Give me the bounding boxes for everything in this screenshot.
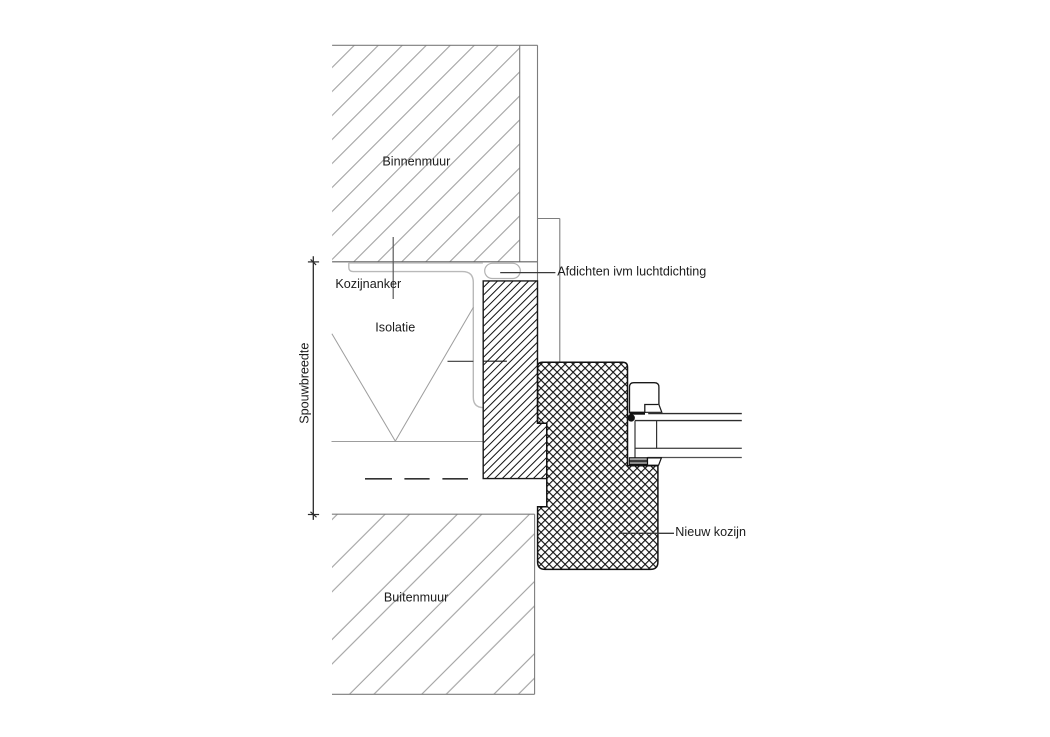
svg-text:Nieuw kozijn: Nieuw kozijn: [675, 525, 746, 539]
svg-text:Buitenmuur: Buitenmuur: [384, 590, 448, 604]
svg-text:Binnenmuur: Binnenmuur: [382, 154, 450, 168]
svg-text:Afdichten ivm luchtdichting: Afdichten ivm luchtdichting: [557, 264, 706, 278]
svg-text:Spouwbreedte: Spouwbreedte: [298, 343, 312, 424]
svg-text:Kozijnanker: Kozijnanker: [335, 277, 401, 291]
svg-text:Isolatie: Isolatie: [375, 320, 415, 334]
